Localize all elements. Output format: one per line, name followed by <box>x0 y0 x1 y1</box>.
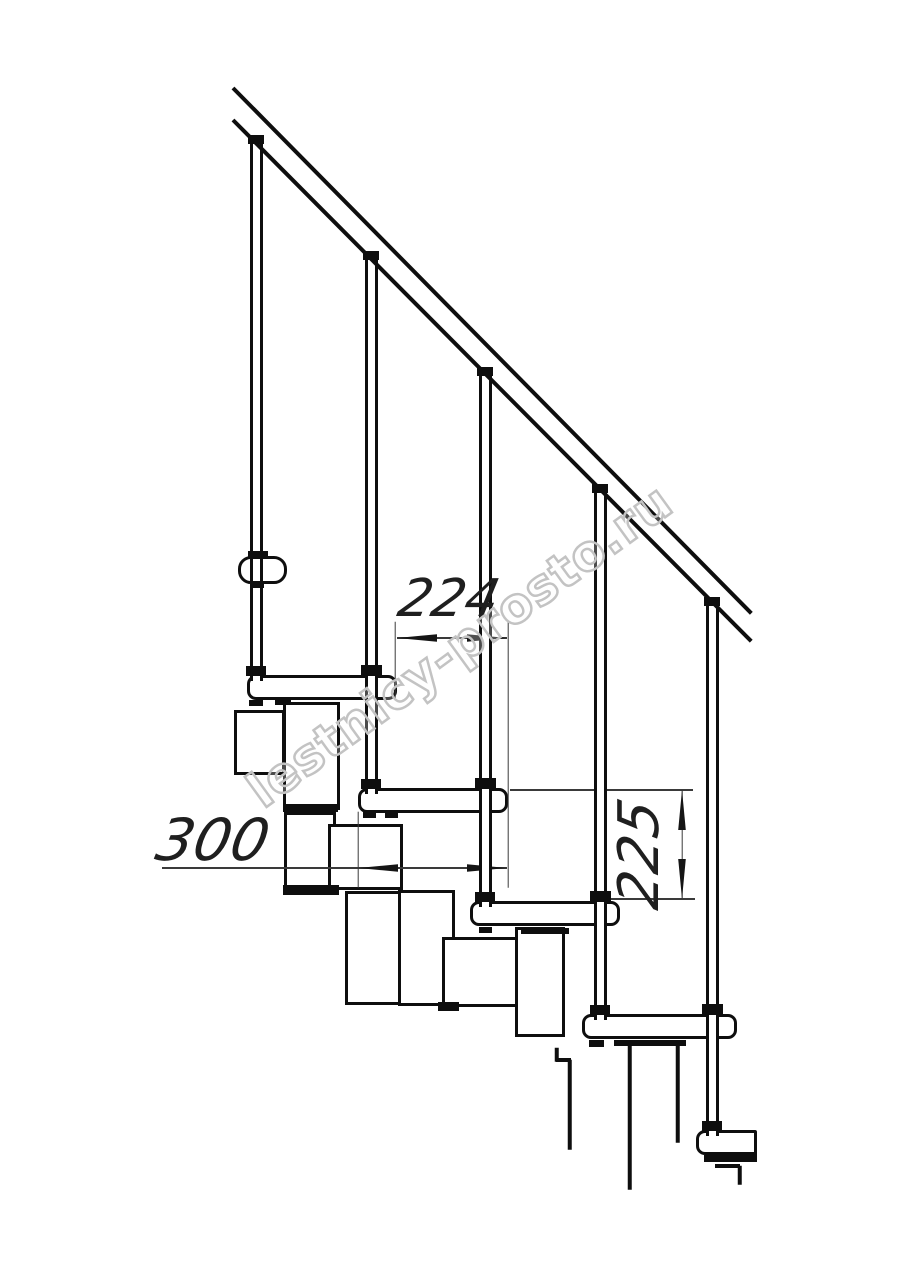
support-module <box>442 937 520 1007</box>
module-plate-fitting <box>283 885 339 895</box>
dimension-arrow-rise <box>677 790 687 830</box>
tread-foot-fitting <box>385 812 398 818</box>
flange-fitting <box>361 779 381 789</box>
tread-foot-fitting <box>363 812 376 818</box>
support-module <box>515 927 565 1037</box>
support-module <box>345 891 403 1005</box>
flange-fitting <box>246 666 266 676</box>
watermark-text: lestnicy-prosto.ru <box>239 476 681 816</box>
dimension-label-rise: 225 <box>612 795 668 914</box>
staircase-technical-drawing: 224 300 225 lestnicy-prosto.ru <box>0 0 914 1280</box>
module-plate-fitting <box>438 1002 459 1011</box>
tread-foot-fitting <box>275 699 291 705</box>
handrail-lower-line <box>232 119 753 643</box>
cut-line <box>568 1060 572 1150</box>
baluster <box>250 143 263 681</box>
flange-fitting <box>590 1005 610 1015</box>
extension-line-going <box>507 622 508 888</box>
handrail-upper-line <box>232 87 753 615</box>
tread-foot-fitting <box>249 700 263 706</box>
flange-fitting <box>702 1004 723 1015</box>
rail-wedge-fitting <box>477 367 493 376</box>
baluster <box>706 605 719 1136</box>
cut-line <box>628 1046 632 1190</box>
rail-wedge-fitting <box>592 484 608 493</box>
cut-line <box>676 1046 680 1143</box>
module-plate-fitting <box>724 1152 757 1162</box>
dimension-arrow-rise <box>677 859 687 899</box>
baluster-collar-bracket <box>238 556 287 584</box>
tread-foot-fitting <box>589 1040 604 1047</box>
tread-foot-fitting <box>479 927 492 933</box>
module-plate-fitting <box>614 1040 686 1046</box>
cut-line <box>738 1166 742 1185</box>
module-plate-fitting <box>283 804 338 812</box>
flange-fitting <box>475 892 495 902</box>
extension-line-tread_depth <box>357 812 358 888</box>
support-module <box>328 824 403 890</box>
module-plate-fitting <box>521 928 569 934</box>
dimension-label-tread-depth: 300 <box>151 811 274 869</box>
flange-fitting <box>475 778 496 789</box>
rail-wedge-fitting <box>704 597 720 606</box>
flange-fitting <box>702 1121 722 1131</box>
cut-line <box>715 1164 740 1168</box>
rail-wedge-fitting <box>363 251 379 260</box>
rail-wedge-fitting <box>248 135 264 144</box>
